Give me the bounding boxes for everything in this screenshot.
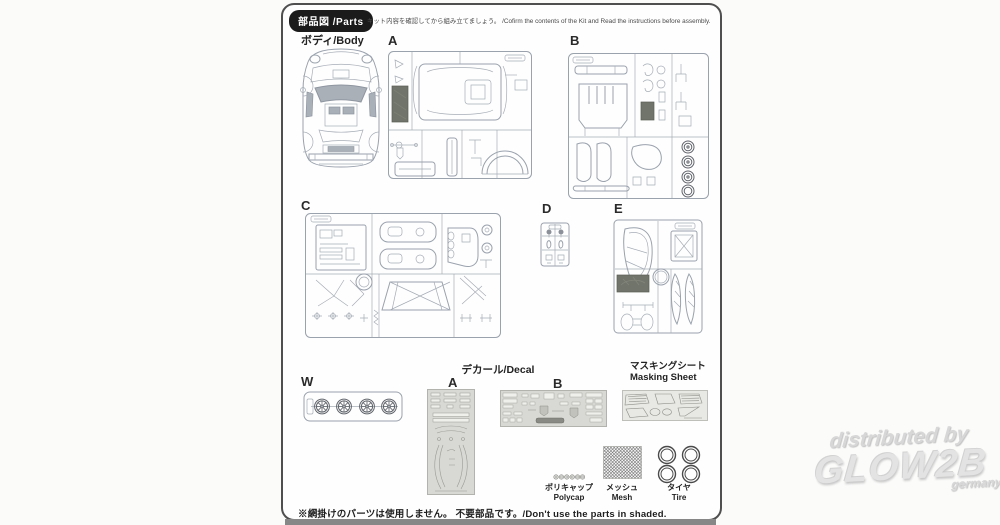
sprue-w-label: W	[301, 374, 314, 389]
sprue-c-drawing	[304, 212, 502, 339]
sprue-b-label: B	[570, 33, 580, 48]
tire-label-jp: タイヤ	[654, 483, 704, 493]
mesh-label-jp: メッシュ	[597, 483, 647, 493]
footer-note: ※網掛けのパーツは使用しません。 不要部品です。/Don't use the p…	[298, 506, 667, 520]
sprue-a-label: A	[388, 33, 398, 48]
decal-sheet-a	[427, 389, 475, 495]
masking-sheet-label-en: Masking Sheet	[630, 373, 706, 384]
polycap-strip-drawing	[553, 473, 585, 481]
mesh-label-en: Mesh	[597, 493, 647, 503]
decal-sheet-b	[500, 390, 607, 427]
car-body-top-view-drawing	[295, 46, 387, 170]
masking-sheet-drawing	[622, 390, 708, 421]
sprue-w-drawing	[303, 391, 403, 422]
polycap-label-jp: ポリキャップ	[539, 483, 599, 493]
sprue-d-label: D	[542, 201, 552, 216]
tire-drawing	[656, 443, 702, 485]
tire-label: タイヤ Tire	[654, 483, 704, 504]
sprue-c-label: C	[301, 198, 311, 213]
decal-b-label: B	[553, 376, 563, 391]
sprue-e-drawing	[613, 219, 703, 334]
scan-edge-bar	[285, 519, 716, 525]
sprue-a-drawing	[387, 50, 533, 180]
mesh-swatch-drawing	[603, 446, 642, 479]
distributor-watermark: distributed by GLOW2B germany	[792, 420, 1000, 499]
polycap-label: ポリキャップ Polycap	[539, 483, 599, 504]
decal-a-label: A	[448, 375, 458, 390]
tire-label-en: Tire	[654, 493, 704, 503]
parts-badge: 部品図 /Parts	[289, 10, 373, 32]
sprue-e-label: E	[614, 201, 623, 216]
sprue-d-drawing	[540, 222, 570, 267]
instruction-page: 部品図 /Parts キット内容を確認してから組み立てましょう。 /Cofirm…	[281, 3, 722, 521]
sprue-b-drawing	[567, 52, 710, 200]
masking-sheet-label: マスキングシート Masking Sheet	[630, 362, 706, 384]
header-note: キット内容を確認してから組み立てましょう。 /Cofirm the conten…	[367, 16, 710, 25]
mesh-label: メッシュ Mesh	[597, 483, 647, 504]
polycap-label-en: Polycap	[539, 493, 599, 503]
